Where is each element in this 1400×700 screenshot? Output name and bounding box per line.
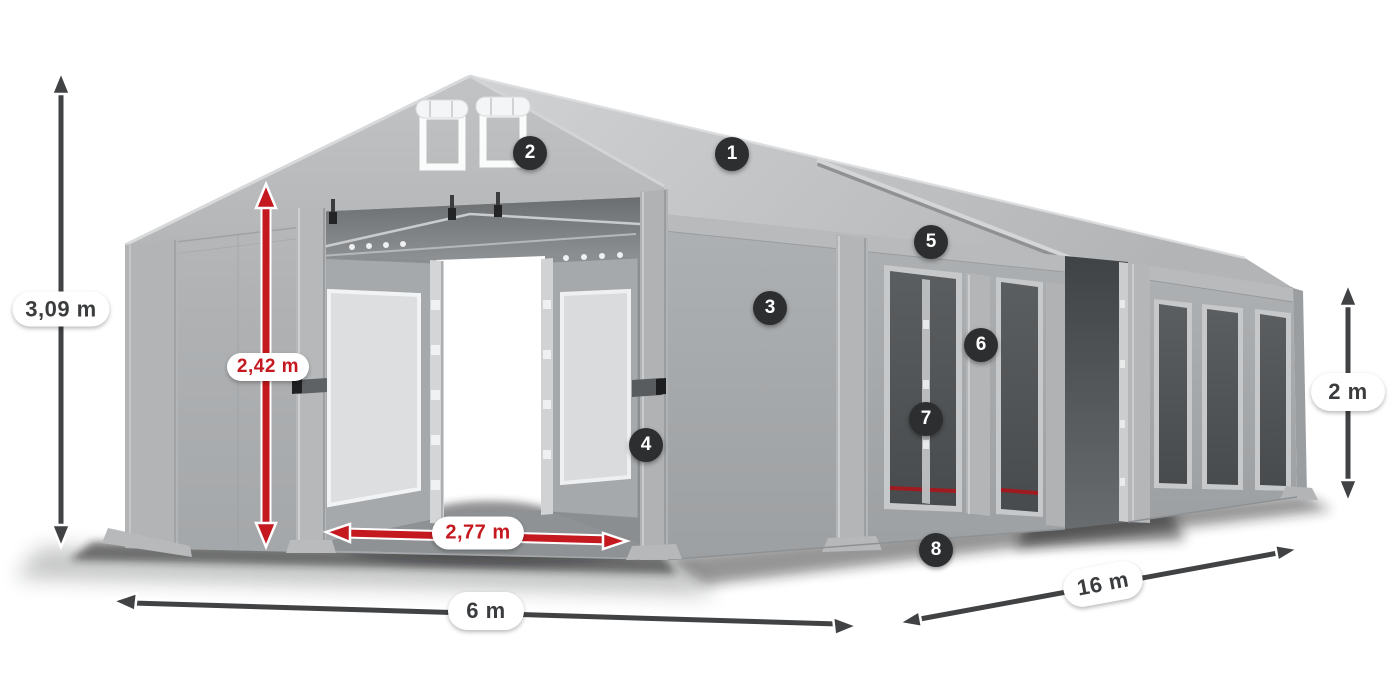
dimension-width: 6 m bbox=[448, 592, 524, 630]
front-face bbox=[102, 76, 682, 560]
callout-8[interactable]: 8 bbox=[919, 533, 953, 567]
side-window-1 bbox=[884, 265, 962, 512]
callout-6[interactable]: 6 bbox=[964, 328, 998, 362]
tie-strap-right bbox=[632, 378, 666, 397]
dimension-side-height: 2 m bbox=[1311, 373, 1385, 411]
dimension-entrance-width: 2,77 m bbox=[432, 517, 524, 550]
far-side-wall bbox=[1128, 262, 1318, 523]
far-window-3 bbox=[1255, 309, 1291, 491]
far-window-2 bbox=[1202, 304, 1243, 490]
side-wall bbox=[664, 214, 1065, 560]
side-end-post bbox=[1046, 282, 1065, 527]
side-window-2 bbox=[996, 277, 1043, 517]
tent-dimensions-diagram: 3,09 m 2,42 m 2,77 m 6 m 16 m 2 m 1 2 3 … bbox=[0, 0, 1400, 700]
right-door-leaf bbox=[552, 258, 638, 518]
far-window-1 bbox=[1154, 299, 1192, 489]
callout-5[interactable]: 5 bbox=[914, 225, 948, 259]
dimension-total-height: 3,09 m bbox=[13, 292, 110, 327]
far-corner-post bbox=[1128, 262, 1150, 523]
callout-1[interactable]: 1 bbox=[715, 137, 749, 171]
right-door-window bbox=[562, 291, 629, 483]
side-corner-post bbox=[836, 234, 868, 547]
callout-2[interactable]: 2 bbox=[513, 136, 547, 170]
tent-illustration bbox=[0, 0, 1400, 700]
callout-7[interactable]: 7 bbox=[909, 402, 943, 436]
left-door-window bbox=[329, 291, 419, 505]
see-through bbox=[436, 256, 545, 522]
door-frame-pole-left bbox=[430, 260, 444, 524]
callout-4[interactable]: 4 bbox=[629, 428, 663, 462]
entrance-opening bbox=[312, 192, 646, 558]
callout-3[interactable]: 3 bbox=[753, 291, 787, 325]
door-frame-pole-right bbox=[541, 258, 553, 515]
dimension-entrance-height: 2,42 m bbox=[227, 353, 309, 381]
open-section bbox=[1065, 256, 1128, 529]
left-door-leaf bbox=[316, 258, 432, 544]
inner-pole bbox=[922, 279, 930, 504]
